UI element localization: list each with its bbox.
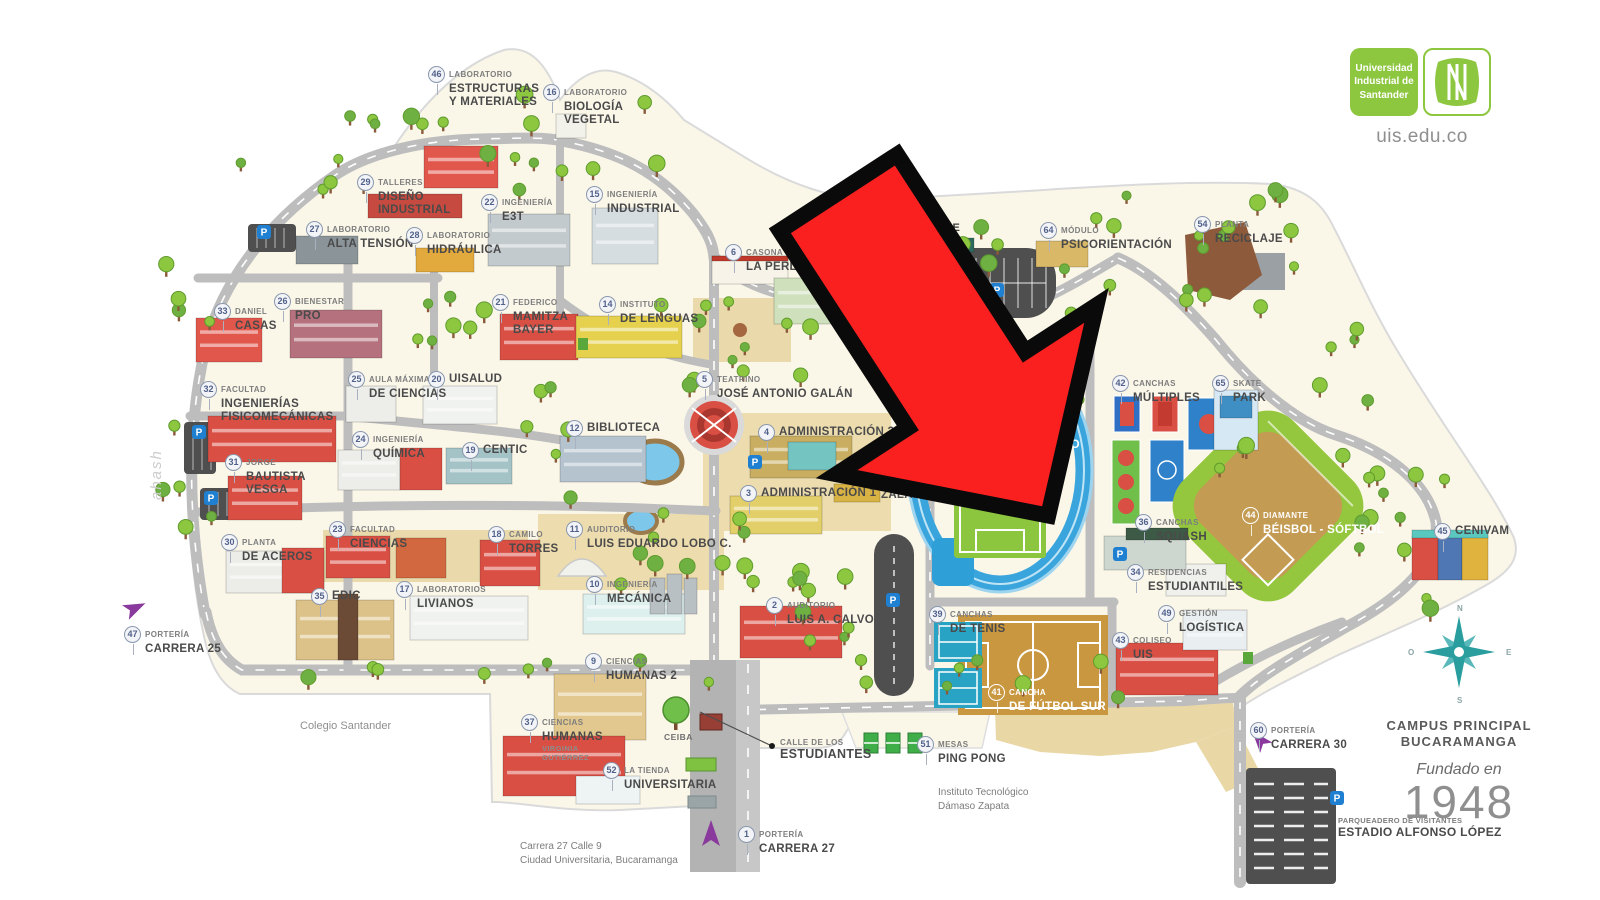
map-label-35: 35EDIC	[311, 588, 361, 605]
building-number-badge: 3	[740, 485, 757, 502]
map-label-24: 24INGENIERÍAQUÍMICA	[352, 431, 425, 461]
corner-info: N S E O CAMPUS PRINCIPAL BUCARAMANGA Fun…	[1384, 604, 1534, 825]
map-label-6: 6CASONALA PERLA	[725, 244, 805, 274]
building-number-badge: 11	[566, 521, 583, 538]
building-number-badge: 4	[758, 424, 775, 441]
building-number-badge: 30	[221, 534, 238, 551]
building-number-badge: 65	[1212, 375, 1229, 392]
map-label-31: 31JORGEBAUTISTAVESGA	[225, 454, 306, 497]
map-label-43: 43COLISEOUIS	[1112, 632, 1172, 662]
building-number-badge: 18	[488, 526, 505, 543]
map-label-21: 21FEDERICOMAMITZABAYER	[492, 294, 568, 337]
building-number-badge: 5	[696, 371, 713, 388]
building-number-badge: 29	[357, 174, 374, 191]
map-label-54: 54PLANTARECICLAJE	[1194, 216, 1283, 246]
uis-domain-text: uis.edu.co	[1350, 126, 1494, 148]
building-number-badge: 23	[329, 521, 346, 538]
building-number-badge: 25	[348, 371, 365, 388]
building-number-badge: 44	[1242, 507, 1259, 524]
building-number-badge: 14	[599, 296, 616, 313]
uis-wordmark: Universidad Industrial de Santander	[1350, 48, 1418, 116]
map-label-33: 33DANIELCASAS	[214, 303, 277, 333]
building-number-badge: 17	[396, 581, 413, 598]
building-number-badge: 22	[481, 194, 498, 211]
map-label-40: 40ESTADIO1° DE MARZO	[980, 422, 1080, 452]
building-number-badge: 12	[566, 420, 583, 437]
map-label-65: 65SKATEPARK	[1212, 375, 1266, 405]
building-number-badge: 45	[1434, 523, 1451, 540]
building-number-badge: 49	[1158, 605, 1175, 622]
campus-line-2: BUCARAMANGA	[1384, 734, 1534, 750]
campus-line-1: CAMPUS PRINCIPAL	[1384, 718, 1534, 734]
map-label-27: 27LABORATORIOALTA TENSIÓN	[306, 221, 413, 251]
uis-monogram-shield	[1423, 48, 1491, 116]
founded-year: 1948	[1384, 779, 1534, 826]
org-line-3: Santander	[1350, 89, 1418, 103]
map-label-19: 19CENTIC	[462, 442, 528, 459]
building-number-badge: 47	[124, 626, 141, 643]
building-number-badge: 28	[406, 227, 423, 244]
building-number-badge: 54	[1194, 216, 1211, 233]
map-label-47: 47PORTERÍACARRERA 25	[124, 626, 221, 656]
map-label-34: 34RESIDENCIASESTUDIANTILES	[1127, 564, 1243, 594]
building-number-badge: 60	[1250, 722, 1267, 739]
note-re: RE	[944, 222, 960, 234]
building-number-badge: 19	[462, 442, 479, 459]
building-number-badge: 26	[274, 293, 291, 310]
map-label-16: 16LABORATORIOBIOLOGÍAVEGETAL	[543, 84, 627, 127]
map-label-51: 51MESASPING PONG	[917, 736, 1006, 766]
building-number-badge: 6	[725, 244, 742, 261]
note-calle: CALLE DE LOSESTUDIANTES	[780, 738, 872, 761]
building-number-badge: 20	[428, 371, 445, 388]
org-line-2: Industrial de	[1350, 75, 1418, 89]
building-number-badge: 40	[980, 422, 997, 439]
map-label-37: 37CIENCIASHUMANASVIRGINIAGUTIÉRREZ	[521, 714, 603, 763]
building-number-badge: 42	[1112, 375, 1129, 392]
building-number-badge: 64	[1040, 222, 1057, 239]
building-number-badge: 31	[225, 454, 242, 471]
map-label-22: 22INGENIERÍAE3T	[481, 194, 553, 224]
compass-s: S	[1457, 696, 1462, 705]
building-number-badge: 33	[214, 303, 231, 320]
map-label-9: 9CIENCIASHUMANAS 2	[585, 653, 677, 683]
building-number-badge: 35	[311, 588, 328, 605]
building-number-badge: 1	[738, 826, 755, 843]
compass-e: E	[1506, 648, 1511, 657]
map-label-52: 52LA TIENDAUNIVERSITARIA	[603, 762, 717, 792]
map-label-3: 3ADMINISTRACIÓN 1	[740, 485, 876, 502]
map-label-5: 5TEATRINOJOSÉ ANTONIO GALÁN	[696, 371, 853, 401]
compass-o: O	[1408, 648, 1414, 657]
map-label-44: 44DIAMANTEBÉISBOL - SÓFTBOL	[1242, 507, 1384, 537]
building-number-badge: 27	[306, 221, 323, 238]
note-instituto: Instituto TecnológicoDámaso Zapata	[938, 786, 1028, 813]
map-label-28: 28LABORATORIOHIDRÁULICA	[406, 227, 502, 257]
compass-n: N	[1457, 604, 1463, 613]
campus-title: CAMPUS PRINCIPAL BUCARAMANGA	[1384, 718, 1534, 751]
building-number-badge: 34	[1127, 564, 1144, 581]
building-number-badge: 2	[766, 597, 783, 614]
building-number-badge: 32	[200, 381, 217, 398]
map-label-4: 4ADMINISTRACIÓN 3	[758, 424, 894, 441]
building-number-badge: 51	[917, 736, 934, 753]
map-label-30: 30PLANTADE ACEROS	[221, 534, 313, 564]
building-number-badge: 39	[929, 606, 946, 623]
building-number-badge: 10	[586, 576, 603, 593]
map-label-60: 60PORTERÍACARRERA 30	[1250, 722, 1347, 752]
building-number-badge: 41	[988, 684, 1005, 701]
map-label-49: 49GESTIÓNLOGÍSTICA	[1158, 605, 1244, 635]
building-number-badge: 16	[543, 84, 560, 101]
map-label-41: 41CANCHADE FÚTBOL SUR	[988, 684, 1106, 714]
uis-logo: Universidad Industrial de Santander uis.…	[1350, 48, 1494, 148]
map-label-2: 2AUDITORIOLUIS A. CALVO	[766, 597, 874, 627]
note-address: Carrera 27 Calle 9Ciudad Universitaria, …	[520, 840, 678, 868]
map-label-36: 36CANCHASSQUASH	[1135, 514, 1207, 544]
map-label-23: 23FACULTADCIENCIAS	[329, 521, 407, 551]
building-number-badge: 21	[492, 294, 509, 311]
map-label-20: 20UISALUD	[428, 371, 502, 388]
map-label-15: 15INGENIERÍAINDUSTRIAL	[586, 186, 680, 216]
building-number-badge: 37	[521, 714, 538, 731]
note-signature: ahash	[148, 449, 165, 500]
campus-map-page: PPPPPPPP 46LABORATORIOESTRUCTURASY MATER…	[0, 0, 1600, 900]
map-label-17: 17LABORATORIOSLIVIANOS	[396, 581, 486, 611]
building-number-badge: 52	[603, 762, 620, 779]
org-line-1: Universidad	[1350, 62, 1418, 76]
map-label-32: 32FACULTADINGENIERÍASFISICOMECÁNICAS	[200, 381, 333, 424]
map-label-18: 18CAMILOTORRES	[488, 526, 559, 556]
building-number-badge: 15	[586, 186, 603, 203]
map-label-7: 7BE	[816, 270, 845, 300]
note-ceiba: CEIBA	[664, 732, 693, 742]
uis-shield-icon	[1432, 54, 1482, 110]
map-label-10: 10INGENIERÍAMECÁNICA	[586, 576, 671, 606]
map-label-39: 39CANCHASDE TENIS	[929, 606, 1005, 636]
building-number-badge: 43	[1112, 632, 1129, 649]
map-label-1: 1PORTERÍACARRERA 27	[738, 826, 835, 856]
map-label-64: 64MÓDULOPSICORIENTACIÓN	[1040, 222, 1172, 252]
map-label-29: 29TALLERESDISEÑOINDUSTRIAL	[357, 174, 451, 217]
compass-letters: N S E O	[1384, 604, 1534, 714]
building-number-badge: 9	[585, 653, 602, 670]
note-colegio: Colegio Santander	[300, 720, 391, 732]
map-label-26: 26BIENESTARPRO	[274, 293, 344, 323]
building-number-badge: 63	[860, 459, 877, 476]
building-number-badge: 46	[428, 66, 445, 83]
map-label-45: 45CENIVAM	[1434, 523, 1509, 540]
map-label-46: 46LABORATORIOESTRUCTURASY MATERIALES	[428, 66, 539, 109]
map-label-42: 42CANCHASMÚLTIPLES	[1112, 375, 1200, 405]
map-label-14: 14INSTITUTODE LENGUAS	[599, 296, 698, 326]
map-label-12: 12BIBLIOTECA	[566, 420, 660, 437]
building-number-badge: 24	[352, 431, 369, 448]
map-label-11: 11AUDITORIOLUIS EDUARDO LOBO C.	[566, 521, 732, 551]
building-number-badge: 7	[816, 270, 833, 287]
building-number-badge: 36	[1135, 514, 1152, 531]
